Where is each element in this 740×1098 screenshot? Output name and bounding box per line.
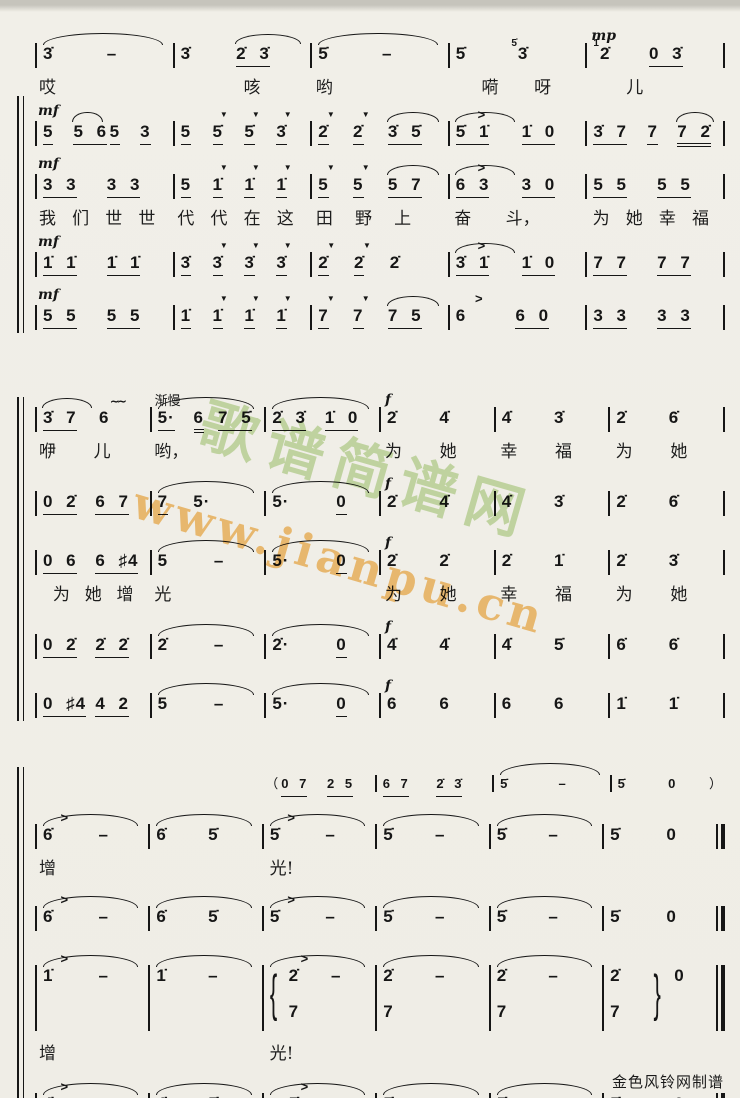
music-line: 3̇–3̇2̇ 3̇5̇–5̇5̇3̇mp1̇2̇0 3̇ (34, 29, 726, 73)
note-text: 4 2 (95, 693, 129, 717)
lyric-char: 光 (152, 580, 195, 605)
chord-note: 2̇ (289, 965, 299, 986)
note-cell: 5̇ (498, 773, 556, 794)
wedge-articulation-mark: ▼ (252, 163, 260, 172)
note-cell: 7 2̇ (675, 121, 719, 147)
note-text: 5 6 (73, 121, 107, 145)
note-text: { (270, 969, 278, 1017)
dash-extension: – (557, 773, 606, 794)
barline (35, 693, 37, 718)
note-cell: 7 (645, 121, 675, 145)
note-text: 1̇ (43, 965, 53, 986)
lyric-char: 儿 (624, 73, 679, 98)
note-cell: >6 3 (454, 174, 520, 198)
barline (375, 824, 377, 849)
measure: 幸福 (495, 437, 610, 462)
lyric-text: 呀 (534, 73, 551, 98)
note-cell: 2̇ 3̇ (234, 43, 306, 67)
cue-paren: （ (263, 773, 279, 794)
dash-extension: – (97, 824, 145, 845)
dash-extension: – (433, 965, 485, 986)
note-text: 3 0 (522, 174, 556, 198)
note-cell: 5· (156, 407, 192, 431)
note-cell: 2̇ 3̇ (270, 407, 322, 431)
barline (716, 1093, 718, 1098)
note-cell: ▼3̇ (274, 121, 306, 145)
grace-note: 5̇ (511, 38, 517, 49)
barline (723, 305, 725, 330)
lyrics-line: 增光! (34, 1037, 726, 1064)
wedge-articulation-mark: ▼ (362, 110, 370, 119)
lyric-text: 增 (39, 1039, 56, 1064)
note-text: 5̇ (270, 906, 280, 927)
music-line: 0 2̇6 775·5·0f2̇4̇4̇3̇2̇6̇ (34, 477, 726, 521)
measure: 幸福 (495, 580, 610, 605)
chord-note: 7 (383, 1001, 393, 1022)
chord-stack: 5̇2̇ (289, 1093, 299, 1098)
note-cell: 5 (156, 550, 212, 571)
lyric-char: 为 (383, 580, 438, 605)
measure: 2̇ 3̇1̇ 0 (267, 407, 378, 431)
lyric-text: 儿 (626, 73, 643, 98)
lyrics-line: 增光! (34, 852, 726, 879)
lyric-char: 们 (70, 204, 103, 229)
note-cell: 2̇ 3̇ (434, 773, 488, 797)
barline (173, 43, 175, 68)
note-text: 3̇ 7 (43, 407, 77, 431)
rest-note: 0 (334, 550, 375, 574)
note-cell: 6̇ (614, 634, 666, 655)
lyric-text: 野 (355, 204, 372, 229)
note-text: 5̇ (610, 824, 620, 845)
note-cell: 5 5 (655, 174, 719, 198)
note-text: 7 7 (593, 252, 627, 276)
accent-mark: > (478, 160, 486, 175)
note-text: 1̇ (213, 174, 223, 198)
dynamic-marking: mf (38, 103, 59, 119)
measure: 1̇– (151, 965, 260, 986)
note-text: 5 5 (657, 174, 691, 198)
accent-mark: > (475, 291, 483, 306)
dash-extension: – (546, 824, 598, 845)
measure: 7 77 7 (588, 252, 722, 276)
note-text: – (99, 1093, 109, 1098)
barline (35, 634, 37, 659)
note-text: 3̇ (276, 252, 286, 276)
note-text: 0 3̇ (649, 43, 683, 67)
note-cell: 1̇ 1̇ (105, 252, 169, 276)
barline (264, 693, 266, 718)
dash-extension: – (433, 906, 485, 927)
note-text: 4̇ (43, 1093, 53, 1098)
note-text: 6 ♯4 (95, 550, 138, 574)
barline (35, 407, 37, 432)
note-cell: 6̇ (667, 491, 719, 512)
barline (379, 491, 381, 516)
note-text: 3̇ (554, 491, 564, 512)
measure: 5̇– (492, 906, 601, 927)
barline (716, 824, 718, 849)
measure: 3̇2̇ 3̇ (176, 43, 310, 67)
note-cell: ▼1̇ (211, 305, 243, 329)
measure: >3̇ 1̇1̇ 0 (451, 252, 585, 276)
barline (723, 252, 725, 277)
measure: 1̇1̇ (611, 693, 722, 714)
note-cell: >5̇ 1̇ (454, 121, 520, 145)
barline (716, 965, 718, 1031)
note-text: 1̇ (554, 550, 564, 571)
note-text: 3̇ (244, 252, 254, 276)
note-text: 2̇ (439, 550, 449, 571)
wedge-articulation-mark: ▼ (327, 163, 335, 172)
dash-extension: – (206, 965, 258, 986)
note-text: 4̇ (439, 407, 449, 428)
note-text: 5̇ (383, 824, 393, 845)
measure: 哟， (149, 437, 264, 462)
measure: 儿 (588, 73, 726, 98)
measure: >6 33 0 (451, 174, 585, 198)
measure: 嗬呀 (449, 73, 587, 98)
note-text: 0 2̇ (43, 491, 77, 515)
chord-cell: 2̇7 (608, 965, 651, 1022)
barline (35, 491, 37, 516)
note-cell: 4̇ (437, 491, 489, 512)
barline (448, 305, 450, 330)
rest-note: 0 ♯4 (41, 693, 93, 717)
note-text: 5̇ 1̇ (456, 121, 490, 145)
barline (492, 775, 494, 792)
lyric-text: 田 (316, 204, 333, 229)
system-2: 3̇ 7∼∼6渐慢5·67 5̇2̇ 3̇1̇ 0f2̇4̇4̇3̇2̇6̇咿儿… (34, 393, 726, 723)
barline (173, 174, 175, 199)
measure: 66 (497, 693, 608, 714)
chord-note: 7 (289, 1001, 299, 1022)
note-text: 2̇ (616, 550, 626, 571)
note-text: 6 (194, 407, 204, 433)
lyric-text: 为 (616, 580, 633, 605)
music-line: >6̇–6̇5̇>5̇–5̇–5̇–5̇0 (34, 892, 726, 936)
note-text: 6 (554, 693, 564, 714)
note-text: 6 3 (456, 174, 490, 198)
note-cell: 3̇ (41, 43, 105, 64)
measure: 4̇5̇ (497, 634, 608, 655)
note-text: 5· (272, 550, 289, 571)
note-text: 6 (502, 693, 512, 714)
note-cell: 3 3 (591, 305, 655, 329)
note-text: 6 (387, 693, 397, 714)
measure: 55 653 (38, 121, 172, 145)
note-cell: 5̇ (495, 824, 547, 845)
note-text: 2̇ 2̇ (95, 634, 129, 658)
note-cell: 5̇ (381, 824, 433, 845)
barline (35, 550, 37, 575)
rest-note: 0 2̇ (41, 634, 93, 658)
lyric-text: 咿 (39, 437, 56, 462)
note-text: 7 (647, 121, 657, 145)
note-cell: 6 (192, 407, 217, 433)
note-text: 5̇ (610, 906, 620, 927)
barline (723, 693, 725, 718)
barline (494, 693, 496, 718)
note-text: 3̇ (181, 43, 191, 64)
note-cell: 5 (179, 174, 211, 198)
note-cell: >6̇ (41, 824, 97, 845)
note-text: – (548, 824, 558, 845)
lyric-text: 斗， (506, 204, 540, 229)
wedge-articulation-mark: ▼ (252, 294, 260, 303)
accent-mark: > (301, 1079, 309, 1094)
note-text: 0 (674, 965, 684, 986)
dash-extension: – (97, 965, 145, 986)
note-text: 5 (353, 174, 363, 198)
music-line: 0 2̇2̇ 2̇2̇–2̇·0f4̇4̇4̇5̇6̇6̇ (34, 620, 726, 664)
note-cell: 5̇ (608, 906, 664, 927)
measure: 光 (149, 580, 264, 605)
barline (35, 305, 37, 330)
note-text: 2̇ (318, 121, 328, 145)
note-cell: ▼5 (316, 174, 351, 198)
barline (148, 965, 150, 1031)
measure: 2̇– (153, 634, 264, 655)
measure: 为她 (380, 580, 495, 605)
barline (35, 43, 37, 68)
barline (723, 407, 725, 432)
lyric-text: 增 (117, 580, 134, 605)
note-text: – (435, 906, 445, 927)
note-text: 3̇ (181, 252, 191, 276)
note-text: 1̇ (276, 305, 286, 329)
note-text: 1̇ (616, 693, 626, 714)
barline (610, 775, 612, 792)
lyric-char: 她 (438, 437, 493, 462)
lyric-char: 幸 (657, 204, 690, 229)
barline (264, 634, 266, 659)
note-text: 5̇ (383, 906, 393, 927)
note-cell: 4̇ (437, 407, 489, 428)
note-text: 0 7 (281, 773, 307, 797)
lyric-text: 增 (39, 854, 56, 879)
note-text: 5· (193, 491, 210, 512)
dynamic-marking: mf (38, 287, 59, 303)
note-text: 5̇ (208, 824, 218, 845)
measure: 2̇·0 (267, 634, 378, 658)
barline (35, 121, 37, 146)
note-cell: 3 3 (41, 174, 105, 198)
wedge-articulation-mark: ▼ (284, 294, 292, 303)
lyric-char: 哎 (37, 73, 90, 98)
note-text: 2̇· (272, 634, 289, 655)
wedge-articulation-mark: ▼ (220, 163, 228, 172)
lyric-text: 哎 (39, 73, 56, 98)
rest-note: 0 (664, 824, 711, 845)
barline (723, 43, 725, 68)
measure: 5̇– (495, 773, 608, 794)
note-text: 6̇ (616, 634, 626, 655)
measure: 3 33 3 (588, 305, 722, 329)
measure: 5̇– (378, 906, 487, 927)
barline (150, 693, 152, 718)
note-cell: 1̇ 0 (520, 252, 582, 276)
note-text: 3 (140, 121, 150, 145)
measure: 2̇3̇ (611, 550, 722, 571)
barline (723, 634, 725, 659)
note-cell: ▼1̇ (211, 174, 243, 198)
note-text: 3 3 (657, 305, 691, 329)
note-cell: 2̇· (270, 634, 334, 655)
note-text: – (382, 43, 392, 64)
chord-cell: >2̇7 (287, 965, 329, 1022)
note-cell: 6 0 (513, 305, 581, 329)
lyric-char: 野 (353, 204, 392, 229)
note-cell: >5̇ (268, 824, 324, 845)
dash-extension: – (433, 1093, 485, 1098)
measure: 5̇5̇3̇ (451, 43, 585, 64)
dash-extension: – (546, 1093, 598, 1098)
note-cell: 3̇ (552, 491, 604, 512)
note-text: – (435, 965, 445, 986)
barline (35, 1093, 37, 1098)
barline (448, 43, 450, 68)
wedge-articulation-mark: ▼ (327, 241, 335, 250)
note-cell: 5· (191, 491, 260, 512)
chord-stack: 2̇7 (383, 965, 393, 1022)
score: 3̇–3̇2̇ 3̇5̇–5̇5̇3̇mp1̇2̇0 3̇哎咳哟嗬呀儿mf55 … (34, 10, 726, 1098)
note-cell: 6̇ (667, 407, 719, 428)
note-text: 1̇ (213, 305, 223, 329)
barline (35, 965, 37, 1031)
lyric-text: 们 (72, 204, 89, 229)
lyric-char: 为 (383, 437, 438, 462)
note-text: 5̇ (497, 824, 507, 845)
lyric-char: 光! (268, 1039, 314, 1064)
dash-extension: – (97, 906, 145, 927)
note-cell: 4̇ (500, 407, 552, 428)
dash-extension: – (212, 550, 260, 571)
measure: 1̇ 1̇1̇ 1̇ (38, 252, 172, 276)
rest-note: 0 (334, 693, 375, 717)
measure: 2̇7}0 (605, 965, 714, 1022)
barline (723, 174, 725, 199)
music-line: 0 ♯44 25–5·0f66661̇1̇ (34, 679, 726, 723)
barline (310, 305, 312, 330)
note-text: – (331, 965, 341, 986)
note-text: 5· (272, 491, 289, 512)
measure: （0 72 5 (260, 773, 373, 797)
music-line: >1̇–1̇–{>2̇7–2̇7–2̇7–2̇7}0 (34, 949, 726, 1039)
note-text: – (99, 824, 109, 845)
measure: 6 72̇ 3̇ (378, 773, 491, 797)
note-text: 3̇ (518, 43, 528, 64)
note-cell: 4̇ (154, 1093, 206, 1098)
note-cell: f2̇ (385, 491, 437, 512)
measure: 我们世世 (34, 204, 172, 229)
measure: 为她 (611, 437, 726, 462)
wedge-articulation-mark: ▼ (363, 241, 371, 250)
note-text: 6 (439, 693, 449, 714)
lyric-text: 为 (616, 437, 633, 462)
note-text: 5 7 (388, 174, 422, 198)
accent-mark: > (61, 951, 69, 966)
note-text: 5̇ (456, 43, 466, 64)
measure: 4̇5̇ (151, 1093, 260, 1098)
note-text: 0 6 (43, 550, 77, 574)
barline (148, 906, 150, 931)
note-text: 3̇ (276, 121, 286, 145)
note-cell: 3 3 (105, 174, 169, 198)
note-text: – (548, 1093, 558, 1098)
note-text: 3̇ (213, 252, 223, 276)
note-text: 7 5̇ (218, 407, 252, 431)
measure: 0 2̇2̇ 2̇ (38, 634, 149, 658)
note-text: 2̇ 3̇ (436, 773, 462, 797)
chord-note: 7 (610, 1001, 620, 1022)
dynamic-mark: f (385, 535, 391, 551)
note-cell: f2̇ (385, 407, 437, 428)
barline (602, 1093, 604, 1098)
note-cell: 5̇ (381, 906, 433, 927)
note-cell: 2̇ (437, 550, 489, 571)
dash-extension: – (105, 43, 169, 64)
note-cell: 1̇ (179, 305, 211, 329)
measure: 增 (34, 1039, 149, 1064)
lyric-text: 幸 (500, 580, 517, 605)
note-text: 3 3 (107, 174, 141, 198)
note-text: – (214, 634, 224, 655)
barline (379, 634, 381, 659)
music-line: mf55 6535▼5̇▼5̇▼3̇▼2̇▼2̇3̇ 5̇>5̇ 1̇1̇ 03… (34, 107, 726, 151)
measure: 3 33 3 (38, 174, 172, 198)
lyric-text: 嗬 (482, 73, 499, 98)
note-cell: 3̇ (667, 550, 719, 571)
note-text: 5 5 (593, 174, 627, 198)
note-cell: 5̇ (495, 906, 547, 927)
lyric-text: 为 (593, 204, 610, 229)
note-cell: 3̇ (179, 252, 211, 276)
lyric-char: 她 (668, 580, 723, 605)
chord-note: 5̇ (289, 1093, 299, 1098)
dash-extension: – (329, 965, 371, 986)
note-text: 6 0 (515, 305, 549, 329)
note-text: 0 (336, 693, 346, 717)
rest-note: 0 (672, 1093, 711, 1098)
note-text: 5 5 (107, 305, 141, 329)
barline (608, 693, 610, 718)
barline (375, 906, 377, 931)
note-cell: ▼5̇ (211, 121, 243, 145)
measure: >6̇– (38, 824, 147, 845)
measure: f66 (382, 693, 493, 714)
note-cell: 6̇ (154, 824, 206, 845)
accent-mark: > (61, 892, 69, 907)
barline (148, 824, 150, 849)
note-text: 5 (158, 550, 168, 571)
note-cell: 5 (41, 121, 71, 145)
note-cell: 4̇ (437, 634, 489, 655)
barline (310, 121, 312, 146)
chord-stack: 5̇2̇ (497, 1093, 507, 1098)
lyric-text: 她 (670, 580, 687, 605)
lyric-text: 幸 (500, 437, 517, 462)
barline (489, 965, 491, 1031)
note-text: 1̇ (244, 174, 254, 198)
barline (262, 1093, 264, 1098)
measure: 75· (153, 491, 264, 515)
note-cell: ▼3̇ (211, 252, 243, 276)
barline (448, 252, 450, 277)
music-line: 3̇ 7∼∼6渐慢5·67 5̇2̇ 3̇1̇ 0f2̇4̇4̇3̇2̇6̇ (34, 393, 726, 437)
lyric-char: 光! (268, 854, 314, 879)
note-text: 5̇ (208, 906, 218, 927)
